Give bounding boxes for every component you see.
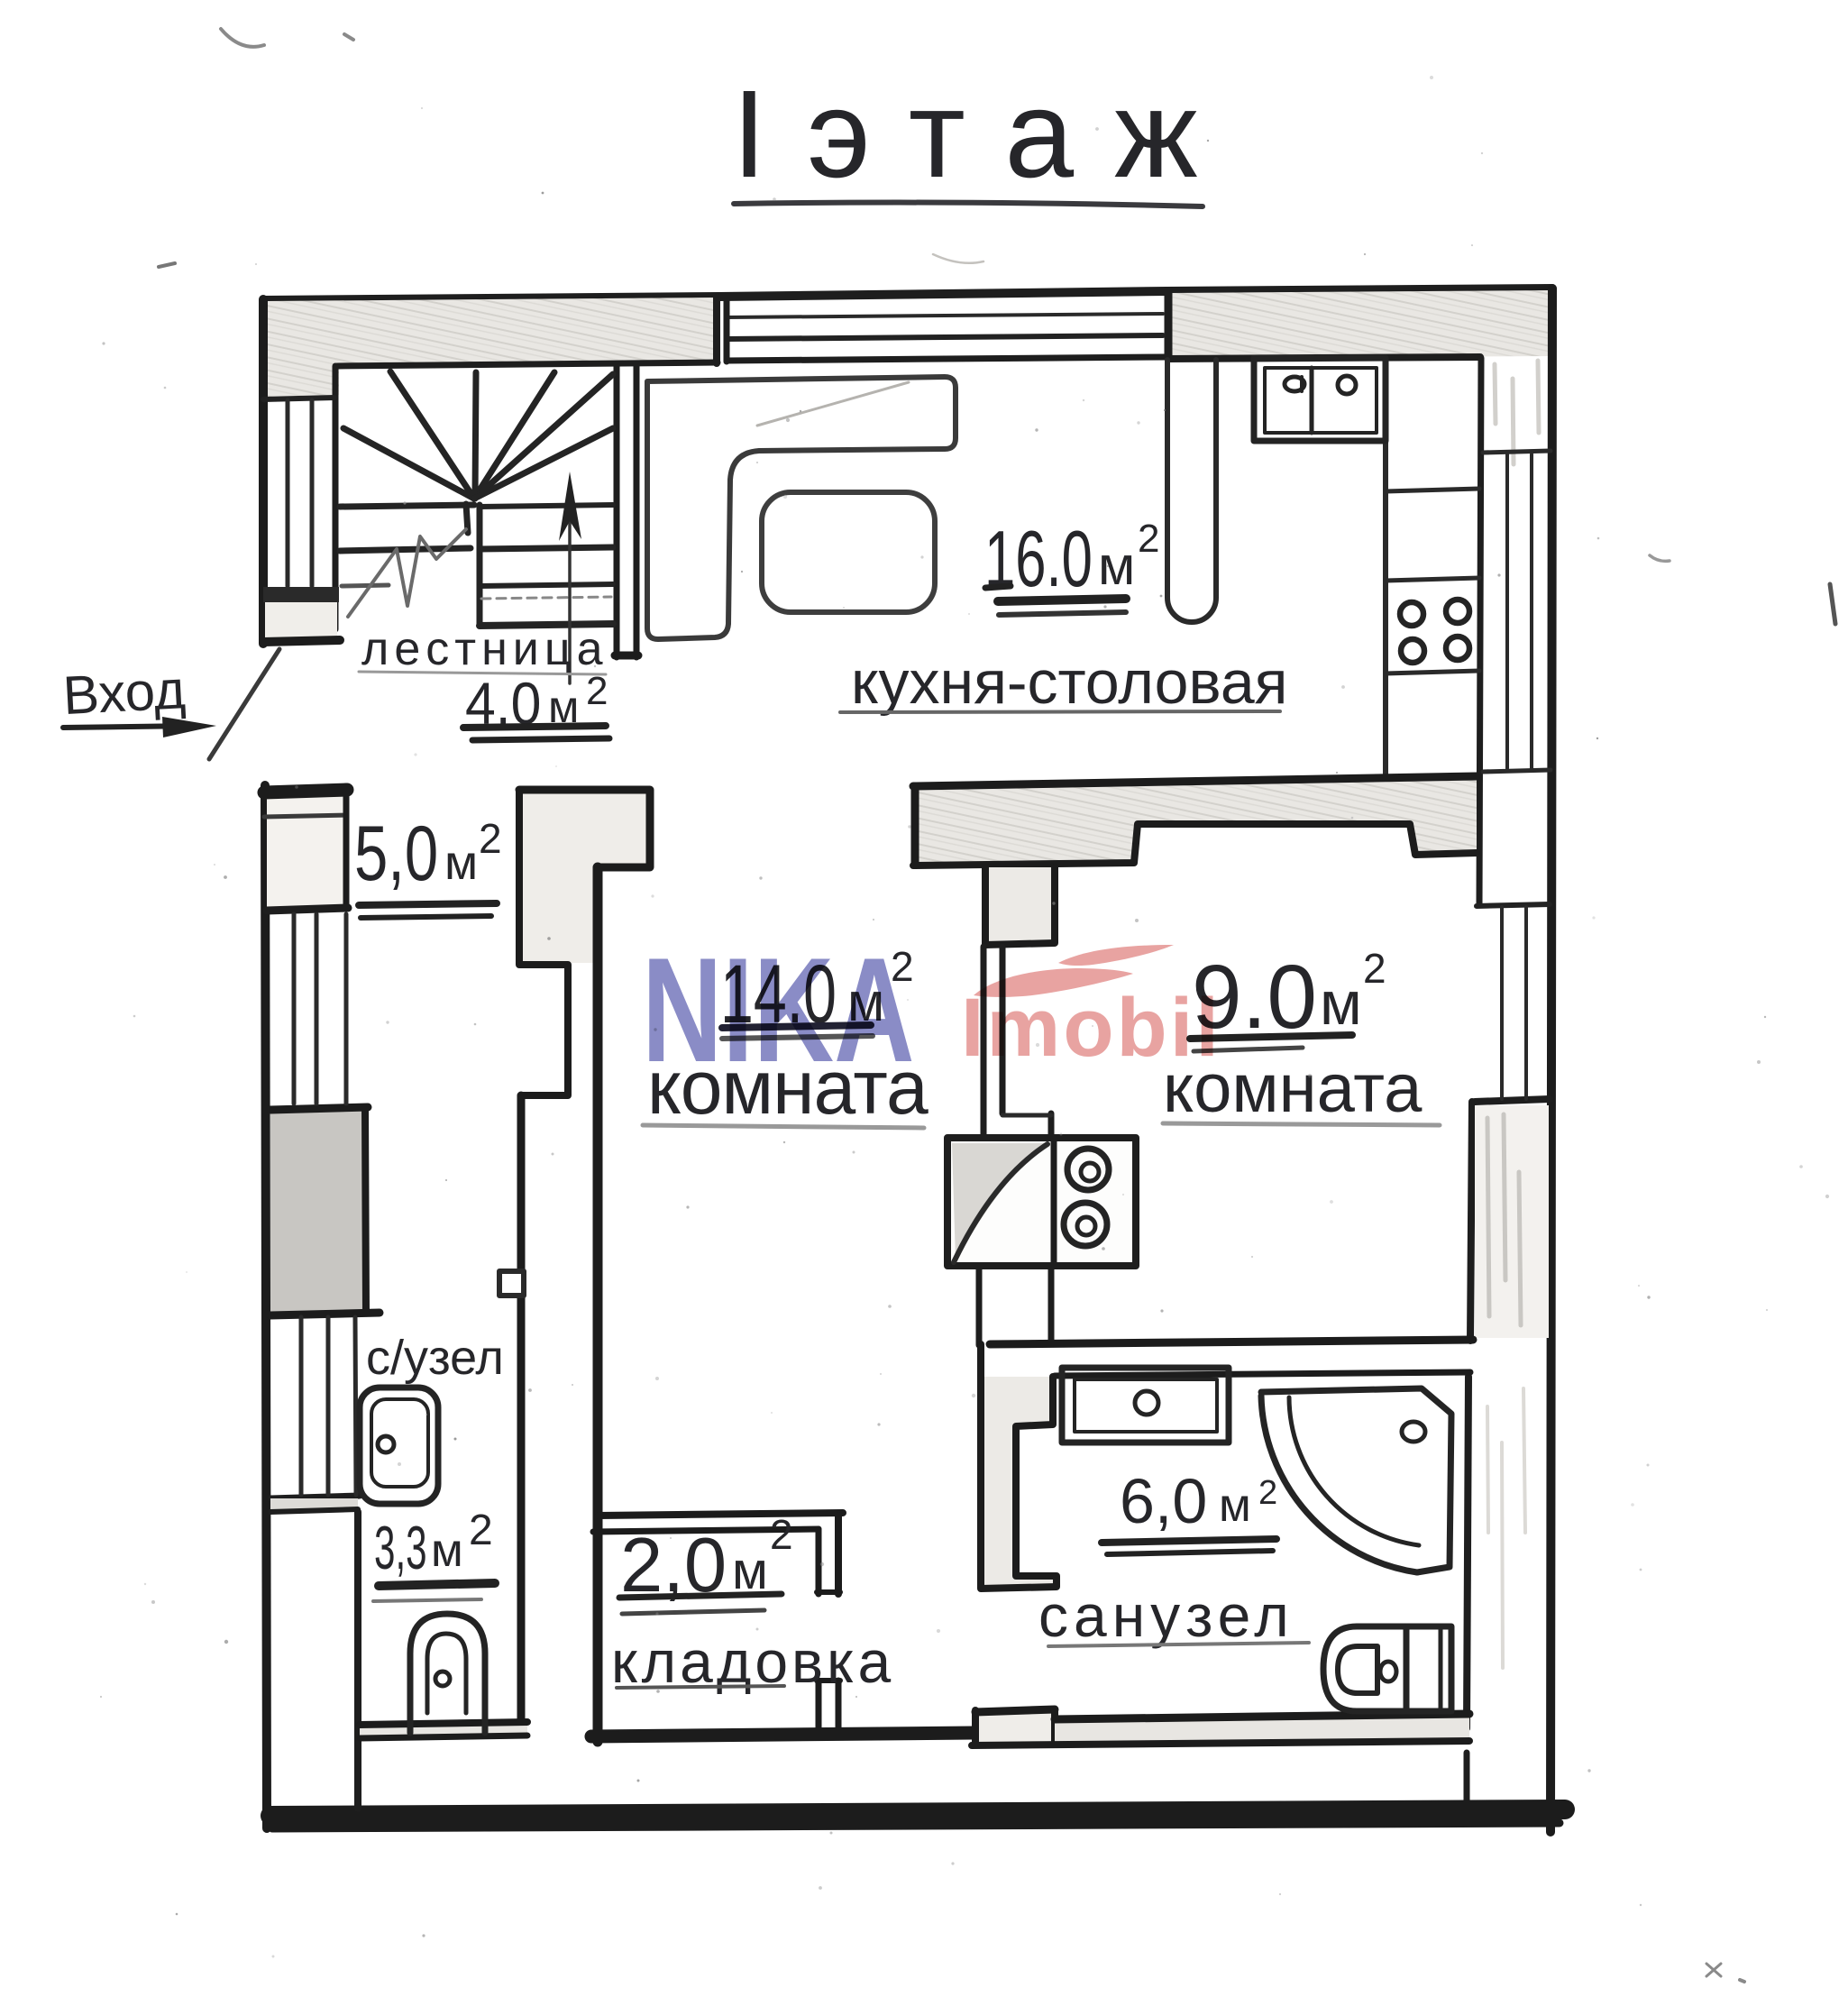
svg-text:5,0: 5,0 bbox=[354, 811, 438, 897]
svg-text:2: 2 bbox=[770, 1511, 793, 1558]
svg-text:м: м bbox=[1098, 536, 1135, 596]
svg-text:м: м bbox=[431, 1525, 463, 1577]
svg-text:2: 2 bbox=[469, 1507, 493, 1554]
svg-text:6,0: 6,0 bbox=[1120, 1466, 1207, 1536]
svg-text:16.0: 16.0 bbox=[984, 515, 1093, 603]
svg-text:санузел: санузел bbox=[1038, 1582, 1295, 1649]
svg-text:Вход: Вход bbox=[61, 659, 187, 726]
svg-text:2: 2 bbox=[1363, 945, 1386, 992]
svg-text:м: м bbox=[1320, 969, 1362, 1038]
svg-text:NIKA: NIKA bbox=[642, 927, 914, 1093]
svg-text:2: 2 bbox=[479, 815, 502, 862]
svg-text:2: 2 bbox=[586, 669, 608, 713]
svg-text:2: 2 bbox=[1258, 1474, 1277, 1512]
svg-text:Iэтаж: Iэтаж bbox=[732, 65, 1238, 204]
svg-text:лестница: лестница bbox=[361, 623, 608, 675]
svg-text:кухня-столовая: кухня-столовая bbox=[851, 648, 1288, 717]
svg-text:2: 2 bbox=[1138, 517, 1159, 561]
svg-text:м: м bbox=[1219, 1479, 1251, 1532]
svg-text:м: м bbox=[444, 836, 478, 890]
svg-text:с/узел: с/узел bbox=[366, 1331, 504, 1385]
svg-text:3,3: 3,3 bbox=[374, 1514, 427, 1582]
